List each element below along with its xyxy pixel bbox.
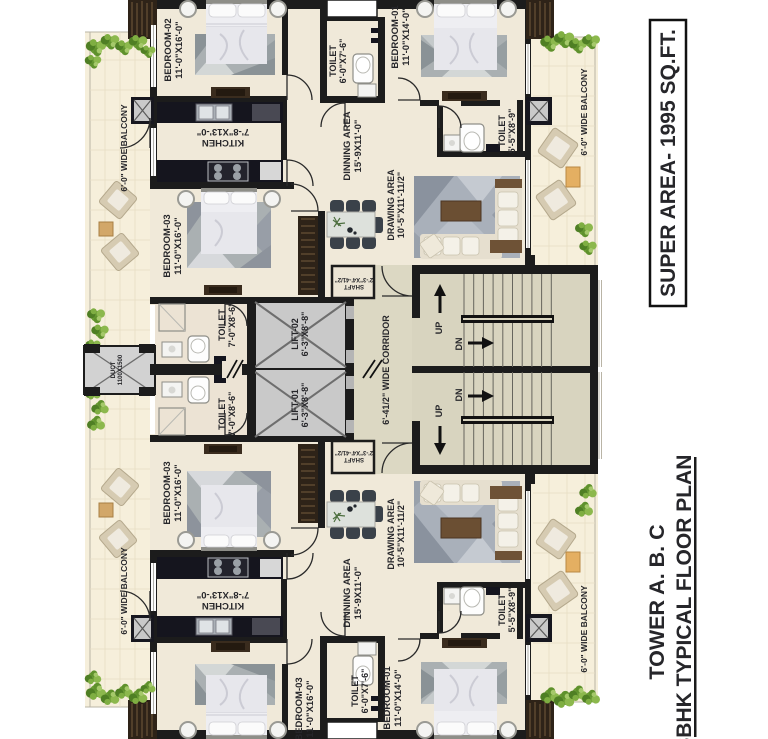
svg-text:7'-0"X8'-6": 7'-0"X8'-6" <box>227 392 237 437</box>
svg-text:6'-0" WIDE BALCONY: 6'-0" WIDE BALCONY <box>579 68 589 156</box>
svg-text:TOILET: TOILET <box>497 115 507 147</box>
svg-text:6'-0" WIDE BALCONY: 6'-0" WIDE BALCONY <box>579 585 589 673</box>
svg-text:BEDROOM-03: BEDROOM-03 <box>162 461 173 524</box>
svg-text:1100X1500: 1100X1500 <box>118 354 124 385</box>
svg-text:UP: UP <box>434 405 444 418</box>
svg-text:11'-0"X16'-0": 11'-0"X16'-0" <box>174 21 185 78</box>
svg-text:6'-3"X8'-8": 6'-3"X8'-8" <box>300 312 310 357</box>
svg-text:LIFT-01: LIFT-01 <box>290 389 300 421</box>
svg-text:6'-3"X8'-8": 6'-3"X8'-8" <box>300 383 310 428</box>
svg-text:2'-3"X4'-41/2": 2'-3"X4'-41/2" <box>335 276 373 282</box>
svg-text:3BHK TYPICAL FLOOR PLAN: 3BHK TYPICAL FLOOR PLAN <box>673 455 696 739</box>
svg-text:TOILET: TOILET <box>217 309 227 341</box>
svg-text:LIFT-02: LIFT-02 <box>290 318 300 350</box>
svg-text:DN: DN <box>454 338 464 351</box>
svg-text:BEDROOM-01: BEDROOM-01 <box>390 5 401 69</box>
svg-text:DN: DN <box>454 389 464 402</box>
svg-text:11'-0"X14'-0": 11'-0"X14'-0" <box>401 8 412 65</box>
svg-text:11'-0"X16'-0": 11'-0"X16'-0" <box>173 464 184 521</box>
svg-text:KITCHEN: KITCHEN <box>202 137 244 148</box>
svg-text:TOILET: TOILET <box>497 594 507 626</box>
svg-text:DUCT: DUCT <box>111 361 117 378</box>
svg-text:TOILET: TOILET <box>350 675 360 707</box>
svg-text:5'-5"X8'-9": 5'-5"X8'-9" <box>507 588 517 633</box>
svg-text:7'-8"X13'-0": 7'-8"X13'-0" <box>197 126 250 137</box>
svg-text:6'-0" WIDE BALCONY: 6'-0" WIDE BALCONY <box>119 547 129 635</box>
svg-text:10'-5"X11'-11/2": 10'-5"X11'-11/2" <box>396 501 406 567</box>
svg-text:10'-5"X11'-11/2": 10'-5"X11'-11/2" <box>396 172 406 238</box>
svg-text:TOILET: TOILET <box>328 45 338 77</box>
svg-text:TOILET: TOILET <box>217 398 227 430</box>
svg-text:7'-0"X8'-6": 7'-0"X8'-6" <box>227 303 237 348</box>
svg-text:SHAFT: SHAFT <box>344 456 364 462</box>
svg-text:TOWER A. B. C: TOWER A. B. C <box>645 524 669 679</box>
svg-text:11'-0"X16'-0": 11'-0"X16'-0" <box>173 217 184 274</box>
svg-text:KITCHEN: KITCHEN <box>202 600 244 611</box>
svg-text:11'-0"X14'-0": 11'-0"X14'-0" <box>393 669 404 726</box>
svg-text:6'-0" WIDE BALCONY: 6'-0" WIDE BALCONY <box>119 104 129 192</box>
svg-text:DRAWING AREA: DRAWING AREA <box>386 169 396 241</box>
svg-text:6'-41/2" WIDE CORRIDOR: 6'-41/2" WIDE CORRIDOR <box>381 315 391 425</box>
svg-text:2'-3"X4'-41/2": 2'-3"X4'-41/2" <box>335 449 373 455</box>
svg-text:BEDROOM-03: BEDROOM-03 <box>162 214 173 277</box>
svg-text:SUPER AREA- 1995 SQ.FT.: SUPER AREA- 1995 SQ.FT. <box>657 29 680 297</box>
svg-text:DRAWING AREA: DRAWING AREA <box>386 498 396 570</box>
svg-text:SHAFT: SHAFT <box>344 283 364 289</box>
svg-text:11'-0"X16'-0": 11'-0"X16'-0" <box>305 680 316 737</box>
svg-text:BEDROOM-01: BEDROOM-01 <box>382 666 393 730</box>
svg-text:7'-8"X13'-0": 7'-8"X13'-0" <box>197 589 250 600</box>
svg-text:BEDROOM-03: BEDROOM-03 <box>294 677 305 739</box>
svg-text:15'-9X11'-0": 15'-9X11'-0" <box>353 567 364 620</box>
svg-text:DINNING AREA: DINNING AREA <box>342 111 353 180</box>
svg-text:6'-0"X7'-6": 6'-0"X7'-6" <box>360 669 370 714</box>
svg-text:6'-0"X7'-6": 6'-0"X7'-6" <box>338 39 348 84</box>
svg-text:DINNING AREA: DINNING AREA <box>342 558 353 627</box>
svg-text:BEDROOM-02: BEDROOM-02 <box>163 18 174 81</box>
svg-text:15'-9X11'-0": 15'-9X11'-0" <box>353 120 364 173</box>
svg-text:UP: UP <box>434 322 444 335</box>
svg-text:5'-5"X8'-9": 5'-5"X8'-9" <box>507 109 517 154</box>
